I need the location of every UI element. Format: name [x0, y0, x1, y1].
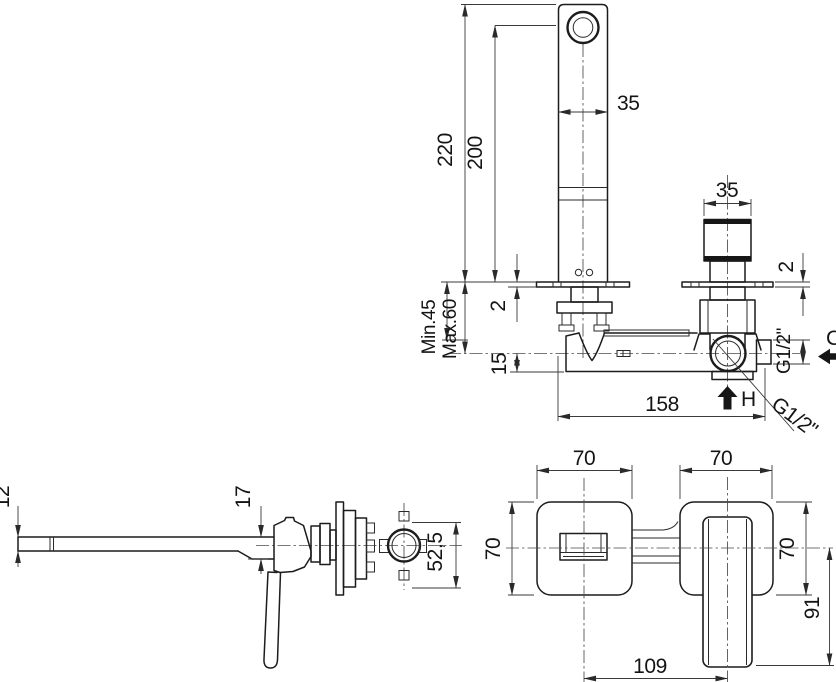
dim-lines-plate-heights: [508, 502, 812, 595]
dim-lines-plate-widths: [537, 465, 772, 499]
dim-spout-outlet-height: 200: [464, 136, 487, 170]
dim-handle-plate-width: 70: [710, 447, 733, 470]
connector-tube: [632, 522, 680, 564]
dim-spout-total-height: 220: [434, 133, 457, 167]
body-ear-left: [694, 334, 710, 350]
side-spout: [18, 537, 274, 559]
label-cold-inlet: C: [826, 327, 836, 350]
dim-lines-axis-offset: [510, 354, 564, 373]
hot-flow-arrow-icon: [718, 386, 738, 410]
installation-view: 220 200 Min.45 Max.60 2 15 35: [419, 5, 836, 442]
front-centerlines: [506, 477, 833, 682]
mixer-body: [566, 330, 771, 380]
dim-spout-thickness: 12: [0, 486, 14, 509]
mounting-bracket: [557, 287, 612, 331]
technical-drawing-page: 220 200 Min.45 Max.60 2 15 35: [0, 0, 836, 682]
dim-handle-plate-height: 70: [776, 538, 799, 561]
label-hot-inlet: H: [741, 388, 756, 411]
side-inwall-parts: [311, 502, 427, 595]
cold-flow-arrow-icon: [818, 349, 836, 364]
dim-min-depth: Min.45: [419, 300, 440, 355]
dim-body-length: 158: [645, 393, 679, 416]
side-wall-plate: [336, 502, 344, 595]
dim-spout-width: 35: [617, 92, 640, 115]
aerator-circle: [568, 12, 599, 43]
spout-outlet-front: [560, 534, 607, 561]
dim-lines-heights: [441, 5, 556, 288]
dim-plate-thickness-right: 2: [775, 261, 798, 272]
dim-handle-width: 35: [716, 179, 739, 202]
dim-spout-root-height: 17: [232, 486, 255, 509]
dim-handle-drop: 91: [801, 597, 824, 620]
inlet-boss: [712, 372, 753, 380]
dim-max-depth: Max.60: [440, 299, 461, 359]
dim-spout-plate-height: 70: [482, 538, 505, 561]
spout-plate-front: [537, 502, 632, 595]
dim-spout-plate-width: 70: [573, 447, 596, 470]
faucet-dimension-drawing: 220 200 Min.45 Max.60 2 15 35: [0, 0, 836, 682]
dim-bottom-thread: G1/2": [767, 393, 822, 442]
side-handle: [264, 518, 311, 669]
dim-axis-distance: 109: [633, 655, 667, 678]
dim-side-thread: G1/2": [774, 328, 795, 374]
dim-lines-spout-root: [248, 506, 268, 574]
set-screw: [586, 269, 592, 275]
set-screw: [575, 269, 581, 275]
dim-axis-offset: 15: [488, 353, 511, 376]
front-view: 70 70 70 70 91 109: [482, 447, 834, 682]
dim-body-depth: 52,5: [424, 532, 447, 571]
side-view: 12 17 52,5: [0, 486, 462, 668]
dim-plate-thickness-left: 2: [487, 300, 510, 311]
body-ear-right: [745, 334, 761, 350]
lever: [264, 572, 281, 668]
